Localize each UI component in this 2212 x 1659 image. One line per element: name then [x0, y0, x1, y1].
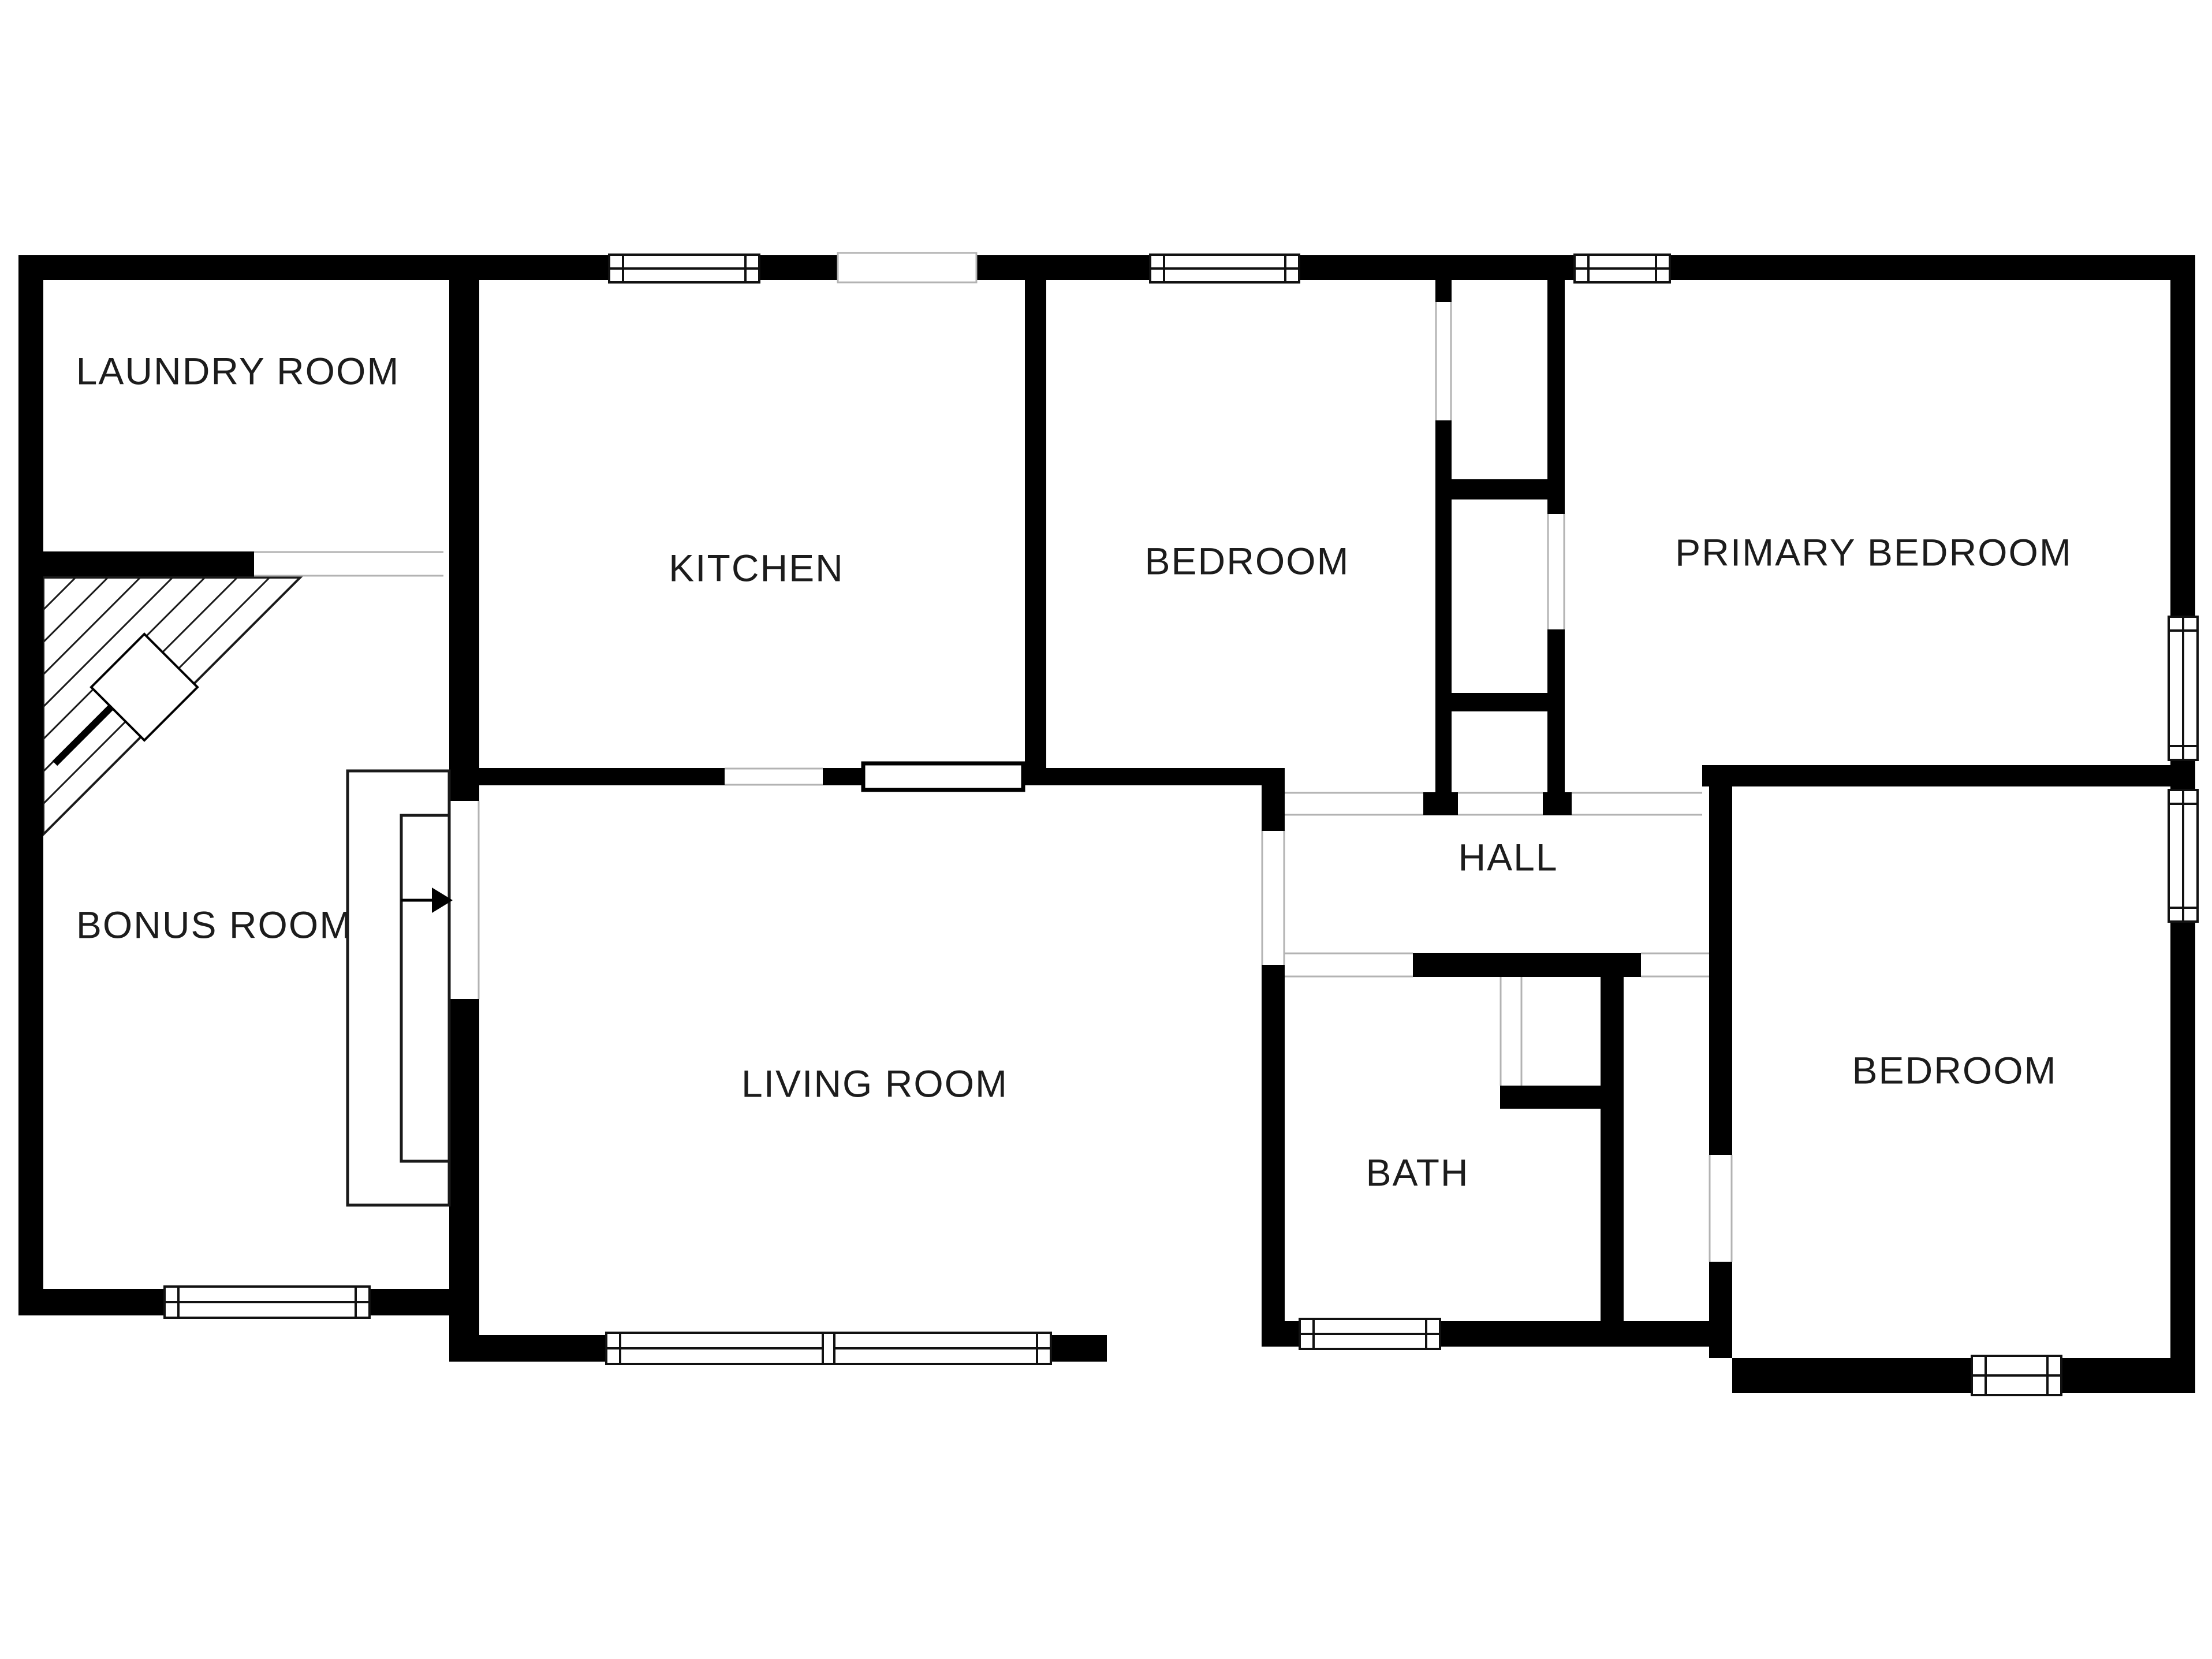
front-entry-opening: [838, 253, 976, 282]
hall-closet-opening: [1641, 953, 1709, 977]
wall-bath-closet-divider: [1601, 977, 1624, 1321]
wall-bonus-living-divider-lower: [449, 999, 479, 1362]
wall-bath-closet-bottom: [1500, 1086, 1624, 1109]
wall-laundry-kitchen-divider-upper: [449, 280, 479, 801]
bedroom-door-opening: [1285, 792, 1423, 815]
wall-bedroom2-bottom: [1732, 1358, 2195, 1393]
wall-closet-shelf-upper: [1452, 479, 1547, 499]
hall-nook-opening: [1458, 792, 1543, 815]
wall-bedroom2-left-lower: [1709, 1262, 1732, 1358]
wall-laundry-bottom: [43, 551, 254, 576]
kitchen-living-opening: [725, 768, 823, 785]
stairs-inner-rect: [401, 815, 449, 1161]
wall-exterior-left: [18, 255, 43, 1315]
room-label-primary-bedroom: PRIMARY BEDROOM: [1675, 531, 2072, 573]
room-label-bedroom-bottom: BEDROOM: [1852, 1049, 2057, 1091]
wall-bedroom-closet-left-b: [1435, 420, 1452, 792]
wall-hall-left-lower: [1262, 965, 1285, 1321]
room-label-hall: HALL: [1458, 836, 1558, 878]
wall-kitchen-living-divider-b: [823, 768, 863, 785]
wall-kitchen-bedroom-divider: [1025, 280, 1046, 768]
bedroom2-door-opening: [1709, 1155, 1732, 1262]
wall-bedroom-closet-right-a: [1547, 280, 1565, 514]
room-label-bonus-room: BONUS ROOM: [76, 903, 352, 946]
room-label-kitchen: KITCHEN: [669, 546, 844, 589]
wall-hall-top-post-b: [1543, 792, 1572, 815]
wall-bedroom-closet-right-b: [1547, 629, 1565, 792]
bath-door-opening: [1285, 953, 1413, 977]
wall-kitchen-living-divider-c: [1023, 768, 1285, 785]
bath-closet-door-opening: [1500, 977, 1522, 1086]
laundry-door-opening: [254, 551, 443, 576]
wall-hall-top-post-a: [1423, 792, 1458, 815]
kitchen-pass-through: [863, 763, 1023, 790]
room-label-bath: BATH: [1366, 1151, 1469, 1194]
hall-entry-opening: [1262, 831, 1285, 965]
wall-primary-bedroom2-divider: [1702, 765, 2170, 786]
room-label-living-room: LIVING ROOM: [741, 1062, 1008, 1105]
living-room-window-pair-center-post: [823, 1333, 834, 1364]
floorplan-canvas: LAUNDRY ROOMKITCHENBEDROOMPRIMARY BEDROO…: [0, 0, 2212, 1659]
primary-closet-door-opening: [1547, 514, 1565, 629]
bedroom-closet-door-opening: [1435, 302, 1452, 420]
wall-kitchen-living-divider-a: [479, 768, 725, 785]
wall-bedroom-closet-left-a: [1435, 280, 1452, 302]
plan-background: [0, 0, 2212, 1659]
stairs-opening: [449, 801, 479, 999]
room-label-laundry-room: LAUNDRY ROOM: [76, 349, 400, 392]
wall-hall-bottom: [1413, 953, 1641, 977]
wall-exterior-top: [18, 255, 2195, 280]
primary-door-opening: [1572, 792, 1702, 815]
room-label-bedroom-top: BEDROOM: [1144, 539, 1349, 582]
wall-bedroom2-left-upper: [1709, 786, 1732, 1155]
wall-closet-shelf-lower: [1452, 693, 1547, 711]
